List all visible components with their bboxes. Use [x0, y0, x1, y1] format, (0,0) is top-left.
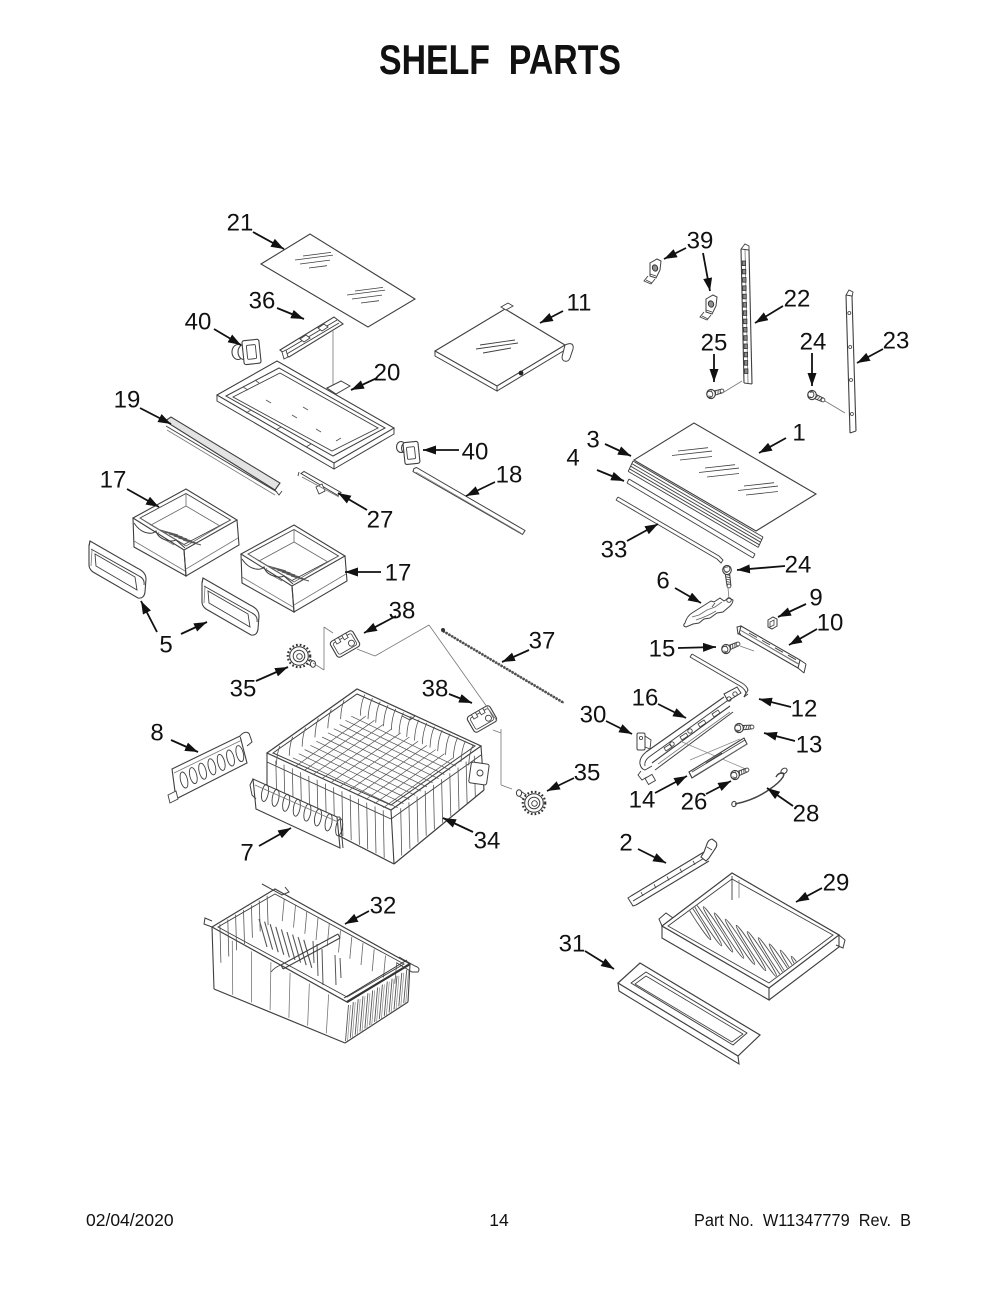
svg-text:28: 28	[793, 801, 820, 828]
svg-text:14: 14	[629, 787, 656, 814]
svg-text:24: 24	[785, 552, 812, 579]
svg-text:14: 14	[489, 1210, 509, 1230]
svg-text:17: 17	[385, 560, 412, 587]
svg-text:40: 40	[462, 439, 489, 466]
svg-text:13: 13	[796, 732, 823, 759]
svg-text:35: 35	[574, 760, 601, 787]
svg-text:SHELF PARTS: SHELF PARTS	[379, 36, 621, 83]
svg-text:22: 22	[784, 286, 811, 313]
svg-text:34: 34	[474, 828, 501, 855]
svg-text:30: 30	[580, 702, 607, 729]
svg-text:4: 4	[566, 445, 579, 472]
svg-text:38: 38	[389, 598, 416, 625]
svg-text:3: 3	[586, 427, 599, 454]
svg-text:2: 2	[619, 830, 632, 857]
svg-text:10: 10	[817, 610, 844, 637]
svg-text:37: 37	[529, 628, 556, 655]
svg-text:39: 39	[687, 228, 714, 255]
svg-text:20: 20	[374, 360, 401, 387]
svg-text:8: 8	[150, 720, 163, 747]
svg-text:6: 6	[656, 568, 669, 595]
svg-text:21: 21	[227, 210, 254, 237]
svg-text:40: 40	[185, 309, 212, 336]
svg-text:26: 26	[681, 789, 708, 816]
svg-text:23: 23	[883, 328, 910, 355]
svg-text:33: 33	[601, 537, 628, 564]
svg-text:25: 25	[701, 330, 728, 357]
svg-text:5: 5	[159, 632, 172, 659]
svg-text:38: 38	[422, 676, 449, 703]
svg-text:36: 36	[249, 288, 276, 315]
svg-text:Part No. W11347779 Rev. B: Part No. W11347779 Rev. B	[694, 1210, 911, 1230]
svg-text:15: 15	[649, 636, 676, 663]
svg-text:19: 19	[114, 387, 141, 414]
svg-text:32: 32	[370, 893, 397, 920]
svg-text:24: 24	[800, 329, 827, 356]
svg-text:16: 16	[632, 685, 659, 712]
svg-text:31: 31	[559, 931, 586, 958]
svg-text:27: 27	[367, 507, 394, 534]
svg-text:7: 7	[240, 840, 253, 867]
svg-text:02/04/2020: 02/04/2020	[86, 1210, 174, 1230]
svg-text:17: 17	[100, 467, 127, 494]
svg-text:18: 18	[496, 462, 523, 489]
svg-text:29: 29	[823, 870, 850, 897]
svg-text:1: 1	[792, 420, 805, 447]
svg-text:12: 12	[791, 696, 818, 723]
svg-text:9: 9	[809, 585, 822, 612]
svg-text:11: 11	[567, 290, 592, 317]
svg-text:35: 35	[230, 676, 257, 703]
